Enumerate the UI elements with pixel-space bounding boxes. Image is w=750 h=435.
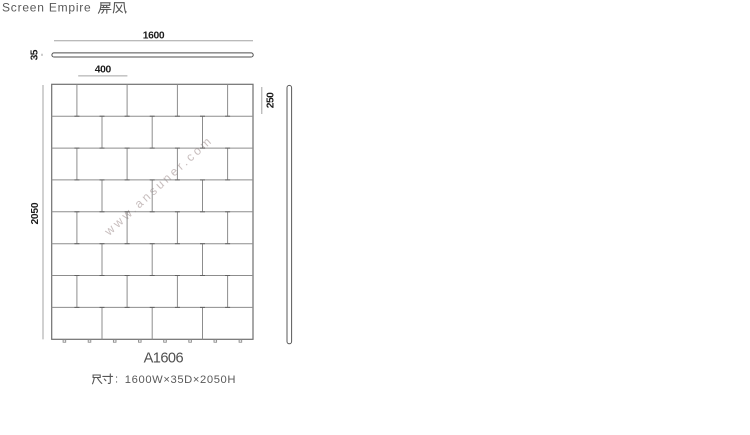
svg-text:A1606: A1606 (144, 351, 184, 367)
svg-text::: : (115, 374, 118, 386)
svg-text:250: 250 (265, 92, 276, 108)
svg-text:1600: 1600 (143, 31, 165, 42)
svg-text:1600W×35D×2050H: 1600W×35D×2050H (125, 374, 236, 386)
svg-text:Screen Empire: Screen Empire (2, 1, 92, 15)
svg-text:400: 400 (95, 64, 112, 75)
svg-text:2050: 2050 (30, 202, 41, 224)
svg-text:35: 35 (30, 49, 41, 60)
